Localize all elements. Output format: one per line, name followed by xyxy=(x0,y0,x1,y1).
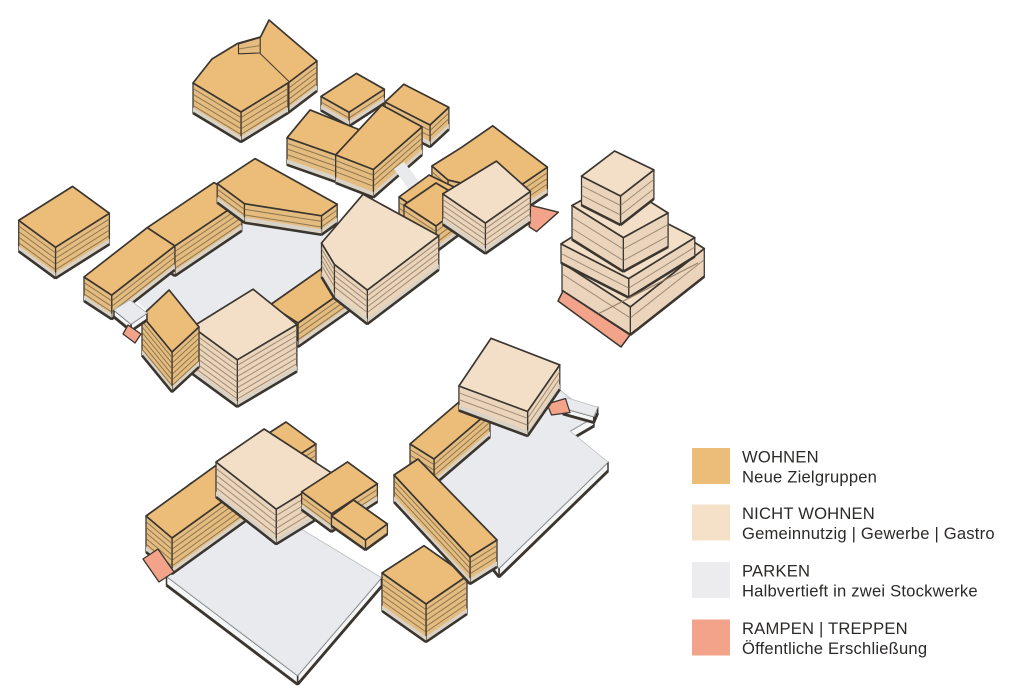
svg-text:NICHT WOHNEN: NICHT WOHNEN xyxy=(742,504,875,523)
svg-text:PARKEN: PARKEN xyxy=(742,562,810,581)
svg-text:Öffentliche Erschließung: Öffentliche Erschließung xyxy=(742,639,927,658)
svg-text:Gemeinnutzig | Gewerbe | Gastr: Gemeinnutzig | Gewerbe | Gastro xyxy=(742,524,995,543)
svg-text:RAMPEN | TREPPEN: RAMPEN | TREPPEN xyxy=(742,619,908,638)
svg-text:Halbvertieft in zwei Stockwerk: Halbvertieft in zwei Stockwerke xyxy=(742,581,978,600)
svg-text:Neue Zielgruppen: Neue Zielgruppen xyxy=(742,467,877,486)
svg-text:WOHNEN: WOHNEN xyxy=(742,448,819,467)
